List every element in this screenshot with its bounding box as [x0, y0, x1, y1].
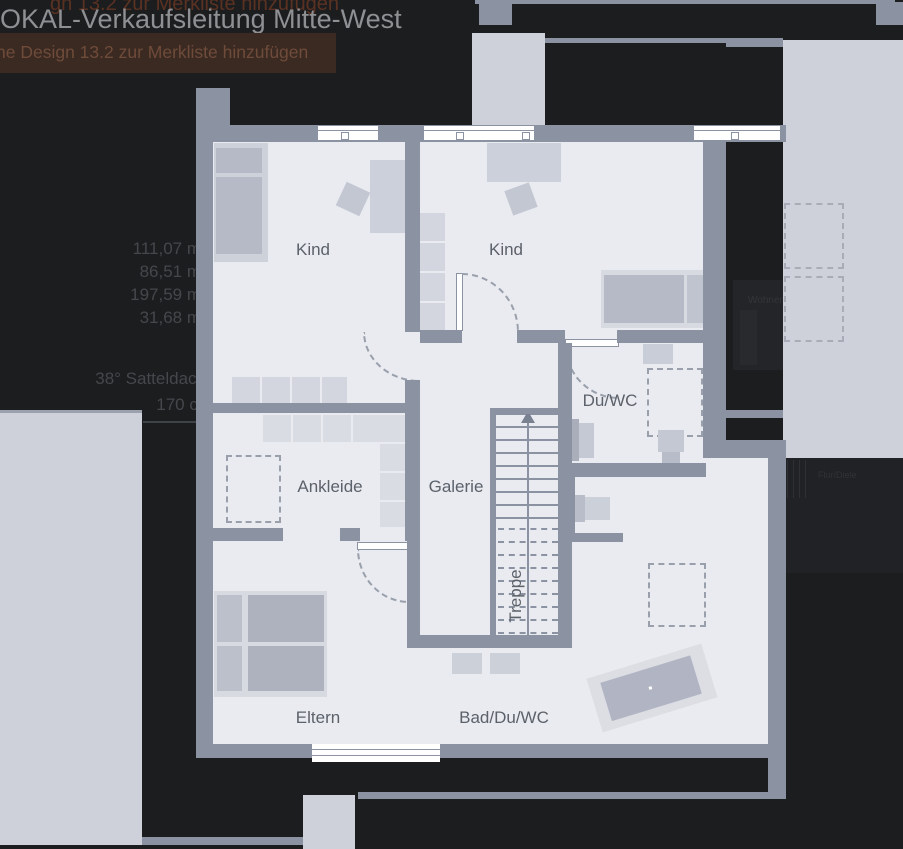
wall-segment: [340, 528, 360, 541]
window-line: [318, 130, 378, 131]
window-line: [312, 749, 440, 750]
room-label-galerie: Galerie: [406, 477, 506, 497]
washer-du-wc: [579, 423, 594, 458]
bed-pillow: [217, 595, 242, 642]
window-line: [312, 755, 440, 756]
wall-segment: [405, 380, 420, 540]
wall-segment: [565, 533, 623, 542]
window-handle: [341, 132, 349, 140]
washbasin-bad: [490, 653, 520, 674]
main-floorplan: Kind Kind Du/WC Ankleide Galerie Treppe …: [0, 0, 903, 849]
stair-rail: [490, 408, 568, 414]
wall-segment: [213, 528, 283, 541]
washbasin-du-wc: [643, 344, 673, 364]
bed-pillow: [217, 646, 242, 691]
wardrobe-row-ankleide: [263, 415, 380, 442]
wall-segment: [768, 440, 786, 758]
room-label-kind-1: Kind: [263, 240, 363, 260]
wall-segment: [196, 744, 786, 758]
window-line: [424, 130, 534, 131]
wall-segment: [420, 330, 462, 343]
stair-center-line: [527, 422, 529, 635]
bed-pillow: [216, 148, 262, 173]
window: [424, 126, 534, 140]
window: [312, 744, 440, 762]
bed-mattress: [248, 646, 324, 691]
wall-segment: [196, 88, 213, 758]
wall-segment: [565, 477, 575, 533]
bed-mattress: [248, 595, 324, 642]
window-handle: [731, 132, 739, 140]
wardrobe-row: [232, 377, 347, 403]
wall-segment: [213, 403, 407, 413]
wc-du-wc: [658, 430, 684, 452]
window-handle: [522, 132, 530, 140]
washbasin: [585, 497, 610, 520]
wall-segment: [517, 330, 565, 343]
room-label-ankleide: Ankleide: [280, 477, 380, 497]
room-label-treppe: Treppe: [506, 559, 526, 633]
wall-segment: [407, 540, 420, 648]
dashed-area-ankleide: [226, 455, 281, 523]
shower-bad: [648, 563, 706, 627]
room-label-du-wc: Du/WC: [560, 391, 660, 411]
room-label-bad-du-wc: Bad/Du/WC: [454, 708, 554, 728]
wall-segment: [565, 463, 706, 477]
page: Wohnen Flur/Diele oss gn 13.2 zur Merkli…: [0, 0, 903, 849]
desk-kind-2: [487, 143, 561, 182]
room-label-kind-2: Kind: [456, 240, 556, 260]
window-line: [694, 130, 780, 131]
washbasin-bad: [452, 653, 482, 674]
wall-segment: [405, 140, 420, 332]
bed-mattress: [604, 275, 684, 323]
window-handle: [456, 132, 464, 140]
wall-segment: [703, 125, 726, 458]
bed-pillow: [687, 275, 703, 323]
room-label-eltern: Eltern: [268, 708, 368, 728]
wall-segment: [407, 635, 570, 648]
wardrobe-kind-2: [420, 213, 445, 330]
bed-mattress: [216, 177, 262, 254]
desk-kind-1: [370, 160, 405, 233]
stair-rail: [490, 410, 496, 648]
wardrobe-column-ankleide: [380, 415, 407, 527]
wall-segment: [617, 330, 706, 343]
